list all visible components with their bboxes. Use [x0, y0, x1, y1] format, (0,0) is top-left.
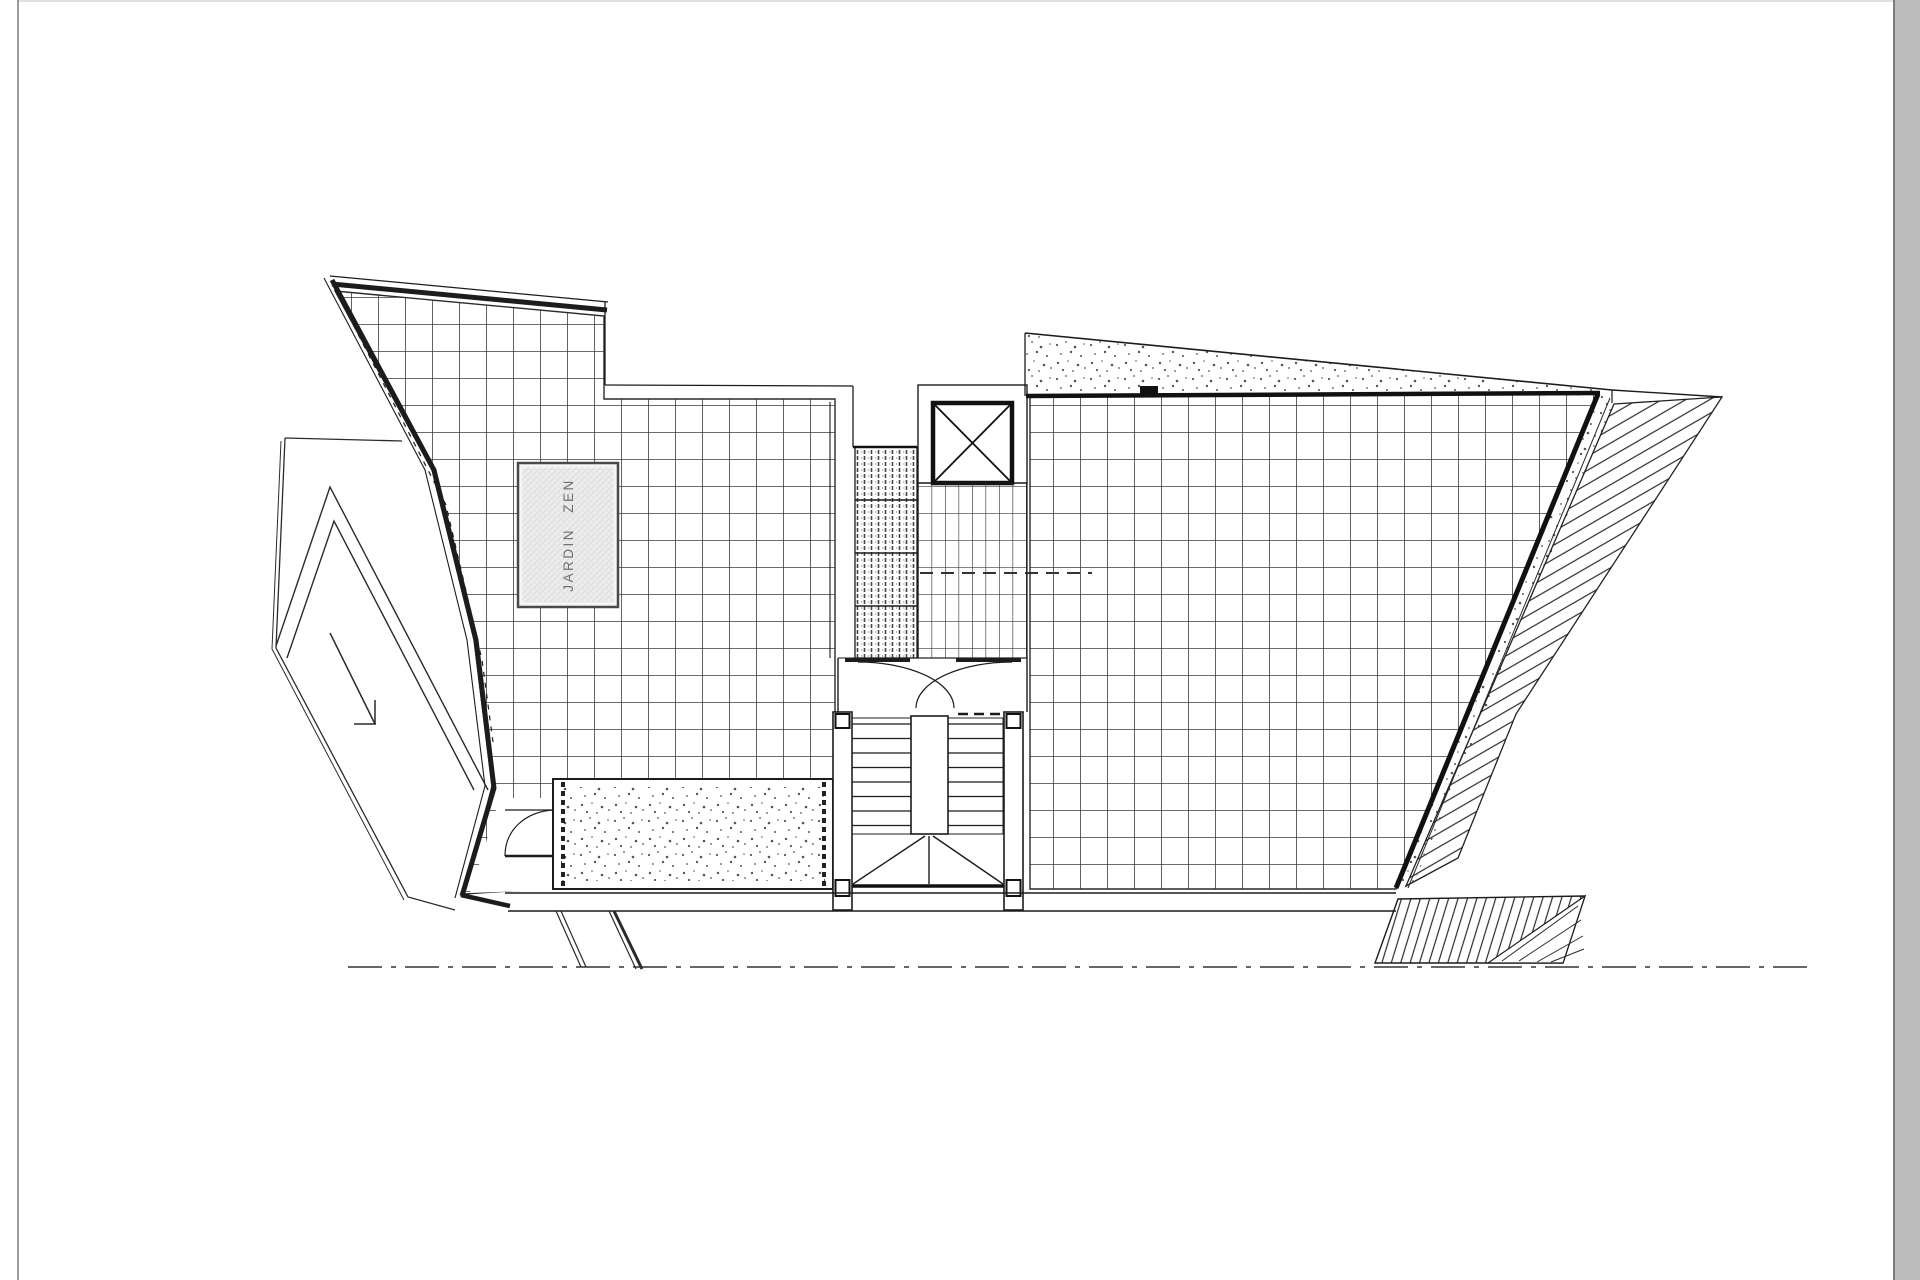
- page-top-edge: [19, 0, 1894, 2]
- page-right-bar: [1894, 0, 1920, 1280]
- wall-post: [836, 714, 850, 728]
- elevator-shaft: [918, 385, 1027, 483]
- stair-treads-right: [948, 718, 1003, 834]
- zen-garden-label: JARDIN ZEN: [561, 478, 576, 592]
- ramp-chevron-inner: [287, 521, 474, 790]
- gravel-planter: [553, 779, 833, 889]
- page-left-edge: [17, 0, 19, 1280]
- page: JARDIN ZEN: [0, 0, 1920, 1280]
- support-struts: [556, 911, 642, 969]
- right-terrace: [1025, 333, 1722, 889]
- wall-post: [1007, 714, 1021, 728]
- left-terrace: JARDIN ZEN: [324, 276, 853, 906]
- grating-strip: [853, 447, 917, 658]
- ramp-direction-arrow: [330, 633, 376, 724]
- bottom-parapet-band: [505, 893, 1396, 911]
- exterior-ramp: [1375, 896, 1585, 963]
- zen-garden-square: JARDIN ZEN: [518, 463, 618, 607]
- stair-newel: [911, 716, 948, 834]
- double-swing-doors: [838, 658, 1027, 714]
- page-right-bar-edge: [1893, 0, 1895, 1280]
- stair-treads-left: [852, 718, 911, 834]
- floor-plan-canvas: JARDIN ZEN: [0, 0, 1920, 1280]
- stair-winders: [853, 836, 1003, 884]
- staircase: [833, 712, 1023, 910]
